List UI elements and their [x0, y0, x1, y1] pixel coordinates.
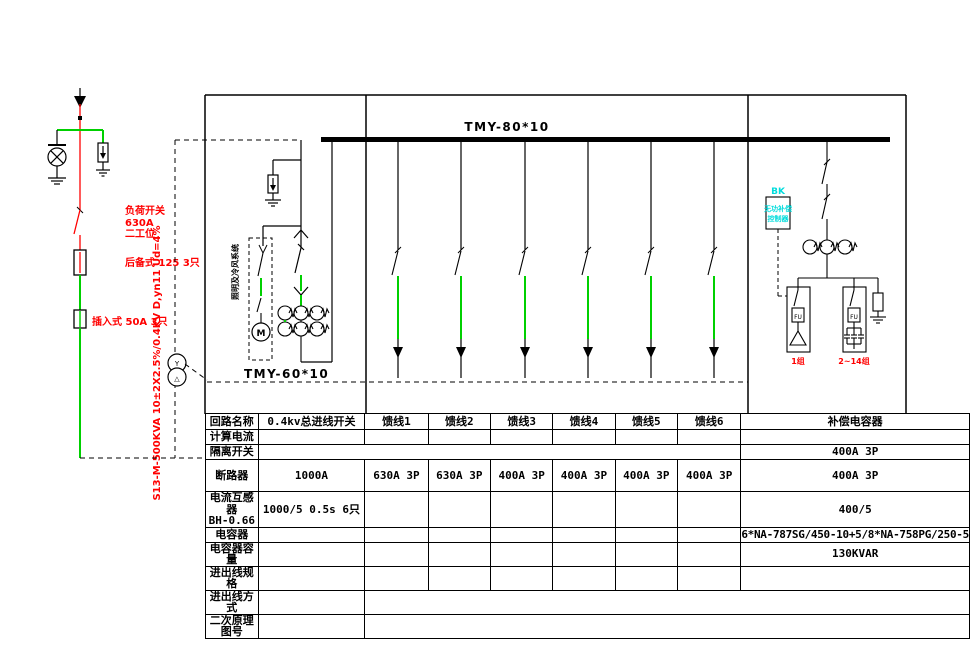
lighting-branch-label: 照明及冷风系统	[230, 244, 240, 300]
bk-caption-1: 无功补偿	[763, 204, 792, 213]
metering-cts	[278, 306, 329, 362]
row-circuit-name: 回路名称 0.4kv总进线开关 馈线1 馈线2 馈线3 馈线4 馈线5 馈线6 …	[206, 414, 970, 430]
row-label-circuit-name: 回路名称	[206, 414, 259, 430]
indicator-lamp	[48, 130, 66, 184]
cell-capqty-feeder5	[615, 542, 677, 566]
cell-name-feeder1: 馈线1	[365, 414, 428, 430]
row-isolator: 隔离开关 400A 3P	[206, 445, 970, 460]
cell-linespec-main	[258, 566, 365, 590]
fuse-box-label-2: FU	[850, 314, 858, 321]
capacitor-bay	[798, 142, 878, 278]
cell-breaker-feeder5: 400A 3P	[615, 460, 677, 492]
load-switch-label-1: 负荷开关	[125, 204, 165, 217]
demarcation-dashed-box	[80, 140, 300, 458]
fuse-box-label-1: FU	[794, 314, 802, 321]
cell-ct-feeder1	[365, 492, 428, 528]
transformer-lv-winding: △	[174, 375, 180, 383]
cell-ct-feeder4	[553, 492, 615, 528]
row-label-secondary-drawing: 二次原理图号	[206, 614, 259, 638]
feeder-2	[455, 142, 466, 378]
cell-breaker-main: 1000A	[258, 460, 365, 492]
ct-label-line1: 电流互感器	[206, 492, 258, 515]
fuse-plugin	[74, 275, 86, 458]
cell-breaker-feeder2: 630A 3P	[428, 460, 490, 492]
cell-capqty-feeder6	[678, 542, 741, 566]
cell-ct-feeder2	[428, 492, 490, 528]
cell-capacitor-model: 6*NA-787SG/450-10+5/8*NA-758PG/250-5	[741, 527, 970, 542]
cell-linespec-feeder6	[678, 566, 741, 590]
cell-current-feeder4	[553, 430, 615, 445]
feeder-4	[582, 142, 593, 378]
cell-name-feeder5: 馈线5	[615, 414, 677, 430]
transformer-hv-winding: Y	[174, 360, 180, 368]
cell-secondary-merged	[365, 614, 970, 638]
bk-caption-2: 控制器	[768, 214, 790, 223]
cell-name-feeder6: 馈线6	[678, 414, 741, 430]
row-ct: 电流互感器 BH-0.66 1000/5 0.5s 6只 400/5	[206, 492, 970, 528]
cell-capmodel-feeder2	[428, 527, 490, 542]
row-secondary-drawing: 二次原理图号	[206, 614, 970, 638]
cell-ct-capacitor: 400/5	[741, 492, 970, 528]
fuse-backup	[74, 250, 86, 275]
load-switch	[74, 207, 83, 250]
cell-linespec-feeder1	[365, 566, 428, 590]
cell-current-feeder2	[428, 430, 490, 445]
row-capacitor-capacity: 电容器容量 130KVAR	[206, 542, 970, 566]
cell-secondary-main	[258, 614, 365, 638]
discharge-resistor	[870, 278, 886, 323]
feeder-1	[392, 142, 403, 378]
cell-current-capacitor	[741, 430, 970, 445]
cell-capmodel-feeder1	[365, 527, 428, 542]
cell-linemethod-merged	[365, 590, 970, 614]
cell-capmodel-feeder3	[490, 527, 552, 542]
cell-current-feeder6	[678, 430, 741, 445]
row-label-capacitor: 电容器	[206, 527, 259, 542]
cell-name-feeder3: 馈线3	[490, 414, 552, 430]
cell-linespec-feeder2	[428, 566, 490, 590]
feeder-3	[519, 142, 530, 378]
cell-capmodel-feeder4	[553, 527, 615, 542]
control-dashed-line	[778, 229, 787, 296]
cell-breaker-feeder3: 400A 3P	[490, 460, 552, 492]
cell-current-feeder5	[615, 430, 677, 445]
row-label-isolator: 隔离开关	[206, 445, 259, 460]
cell-linespec-feeder4	[553, 566, 615, 590]
cell-name-feeder2: 馈线2	[428, 414, 490, 430]
cell-current-feeder3	[490, 430, 552, 445]
main-incoming-bay	[263, 140, 332, 362]
main-busbar-label: TMY-80*10	[464, 120, 549, 134]
cell-current-main	[258, 430, 365, 445]
circuit-spec-table: 回路名称 0.4kv总进线开关 馈线1 馈线2 馈线3 馈线4 馈线5 馈线6 …	[205, 413, 970, 639]
surge-arrester-hv	[96, 130, 110, 176]
cell-breaker-feeder4: 400A 3P	[553, 460, 615, 492]
cell-isolator-capacitor: 400A 3P	[741, 445, 970, 460]
bk-title: BK	[771, 187, 786, 197]
cell-linemethod-main	[258, 590, 365, 614]
cell-name-feeder4: 馈线4	[553, 414, 615, 430]
cap-group-2-label: 2~14组	[838, 356, 869, 366]
row-label-ct: 电流互感器 BH-0.66	[206, 492, 259, 528]
cell-capqty-main	[258, 542, 365, 566]
cell-breaker-feeder1: 630A 3P	[365, 460, 428, 492]
cell-capqty-feeder3	[490, 542, 552, 566]
cell-linespec-feeder5	[615, 566, 677, 590]
cell-capmodel-main	[258, 527, 365, 542]
cell-capacitor-capacity: 130KVAR	[741, 542, 970, 566]
cell-linespec-capacitor	[741, 566, 970, 590]
row-label-line-method: 进出线方式	[206, 590, 259, 614]
cell-capqty-feeder1	[365, 542, 428, 566]
row-label-calc-current: 计算电流	[206, 430, 259, 445]
cell-breaker-capacitor: 400A 3P	[741, 460, 970, 492]
row-line-method: 进出线方式	[206, 590, 970, 614]
row-label-cap-capacity: 电容器容量	[206, 542, 259, 566]
cell-breaker-feeder6: 400A 3P	[678, 460, 741, 492]
cell-ct-feeder6	[678, 492, 741, 528]
cell-isolator-merged	[258, 445, 741, 460]
cell-ct-feeder5	[615, 492, 677, 528]
motor-label: M	[257, 329, 266, 339]
lighting-motor-branch	[249, 226, 272, 360]
cell-capmodel-feeder5	[615, 527, 677, 542]
load-switch-label-2: 630A	[125, 218, 154, 229]
cell-ct-main: 1000/5 0.5s 6只	[258, 492, 365, 528]
drawing-canvas: 负荷开关 630A 二工位 后备式 125 3只 插入式 50A 3只 S13-…	[0, 0, 970, 664]
cap-group-1-label: 1组	[791, 356, 805, 366]
row-capacitor-model: 电容器 6*NA-787SG/450-10+5/8*NA-758PG/250-5	[206, 527, 970, 542]
bk-controller	[766, 197, 790, 229]
cell-linespec-feeder3	[490, 566, 552, 590]
feeder-6	[708, 142, 719, 378]
cell-capmodel-feeder6	[678, 527, 741, 542]
cell-name-capacitor: 补偿电容器	[741, 414, 970, 430]
load-switch-label-3: 二工位	[125, 227, 155, 240]
row-label-breaker: 断路器	[206, 460, 259, 492]
cell-name-main: 0.4kv总进线开关	[258, 414, 365, 430]
row-line-spec: 进出线规格	[206, 566, 970, 590]
lv-bus-label: TMY-60*10	[244, 367, 329, 381]
ct-label-line2: BH-0.66	[206, 515, 258, 527]
cell-current-feeder1	[365, 430, 428, 445]
feeder-5	[645, 142, 656, 378]
cell-ct-feeder3	[490, 492, 552, 528]
main-busbar	[321, 137, 890, 142]
row-breaker: 断路器 1000A 630A 3P 630A 3P 400A 3P 400A 3…	[206, 460, 970, 492]
row-label-line-spec: 进出线规格	[206, 566, 259, 590]
row-calc-current: 计算电流	[206, 430, 970, 445]
cell-capqty-feeder4	[553, 542, 615, 566]
cell-capqty-feeder2	[428, 542, 490, 566]
surge-arrester-lv	[265, 160, 301, 206]
transformer-spec-label: S13-M-500KVA 10±2X2.5%/0.4KV D,yn11 Ud=4…	[152, 225, 163, 500]
